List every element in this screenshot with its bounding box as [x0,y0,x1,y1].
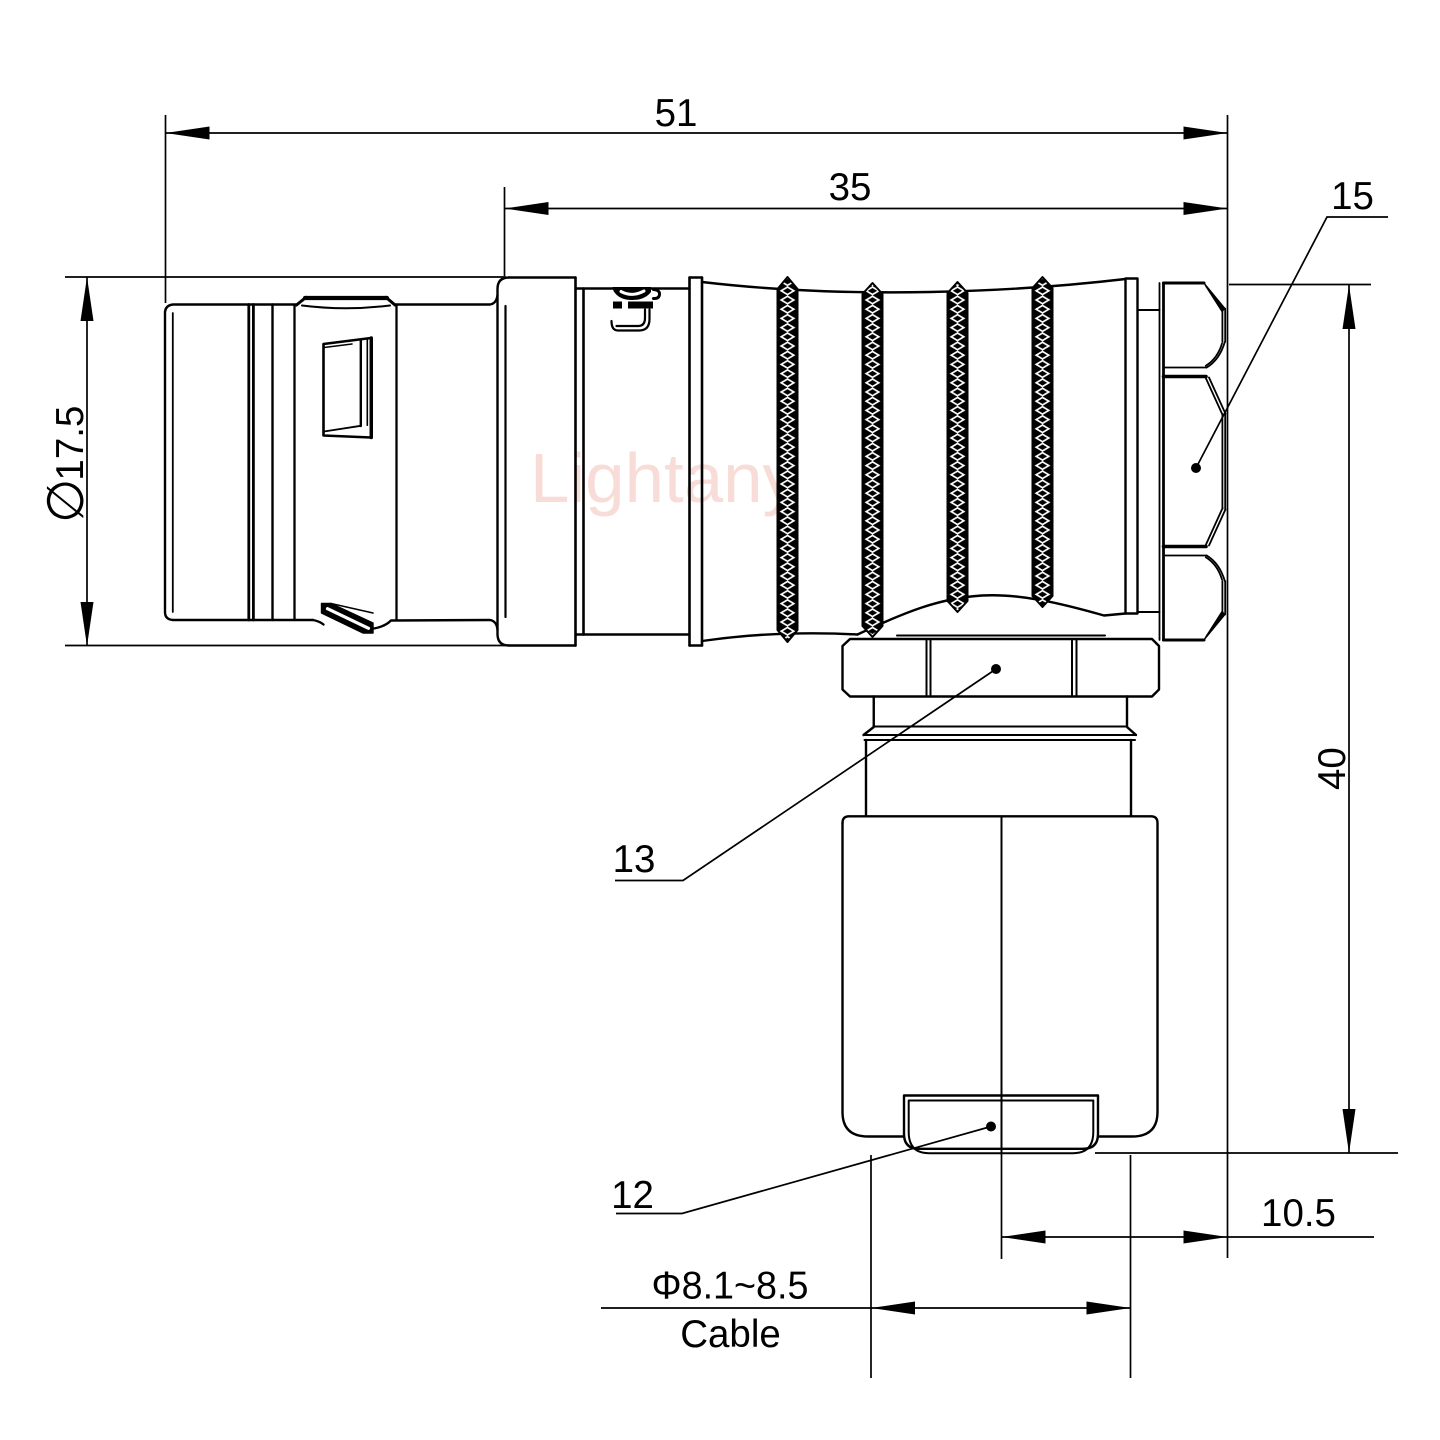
svg-text:51: 51 [655,92,698,135]
svg-text:13: 13 [613,838,656,881]
svg-text:12: 12 [611,1174,654,1217]
svg-text:10.5: 10.5 [1261,1192,1336,1235]
svg-text:Φ8.1~8.5: Φ8.1~8.5 [652,1265,809,1308]
svg-text:Lightany: Lightany [530,439,798,517]
svg-text:40: 40 [1311,747,1354,790]
svg-text:35: 35 [829,166,872,209]
svg-text:15: 15 [1331,175,1374,218]
svg-text:Cable: Cable [680,1313,781,1356]
